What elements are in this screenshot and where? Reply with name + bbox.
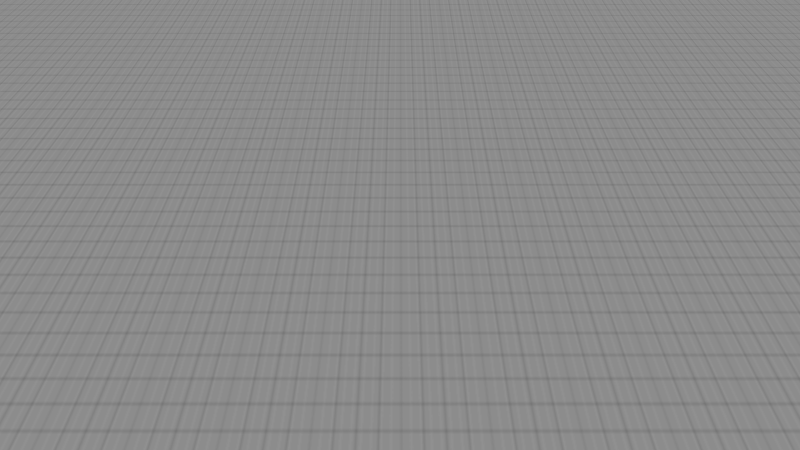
fascia-band (171, 346, 637, 386)
blue-chair (346, 141, 351, 146)
wall (426, 179, 486, 189)
wall-cap (387, 179, 388, 249)
wall (320, 156, 384, 166)
orange-door (218, 312, 231, 323)
wall-cap (407, 216, 409, 249)
maroon-door (467, 250, 479, 260)
wall-cap (247, 286, 375, 287)
wall (228, 156, 309, 166)
orange-door (386, 272, 399, 283)
desk-row (311, 211, 345, 217)
wall (249, 180, 291, 190)
orange-door (191, 297, 204, 308)
wall (497, 248, 602, 260)
wall (475, 155, 566, 165)
wall (193, 269, 222, 281)
blue-chair (330, 130, 335, 135)
wall (199, 250, 247, 262)
blue-chair (341, 130, 346, 135)
orange-door (500, 141, 510, 150)
orange-door (272, 157, 282, 166)
desk-row (313, 195, 346, 201)
blue-chair (334, 141, 339, 146)
wall-cap (172, 335, 634, 337)
maroon-door (354, 288, 368, 298)
brown-door (570, 281, 580, 291)
wall (264, 249, 361, 261)
maroon-door (407, 288, 421, 298)
wall (316, 217, 346, 228)
lab-table (326, 147, 353, 153)
orange-door (515, 311, 528, 322)
maroon-door (260, 288, 274, 298)
orange-door (536, 271, 549, 282)
blue-chair (336, 130, 341, 135)
red-door (529, 158, 536, 165)
wall-cap (393, 285, 530, 286)
orange-door (564, 308, 577, 319)
red-fixture (241, 135, 249, 140)
3d-viewport[interactable] (0, 0, 800, 450)
blue-chair (340, 141, 345, 146)
wall (504, 179, 575, 189)
floorplan-3d-model (0, 0, 800, 450)
wall (390, 155, 464, 165)
bench-row (305, 280, 343, 286)
blue-chair (329, 141, 334, 146)
blue-chair (347, 130, 352, 135)
green-item (430, 312, 439, 319)
wall (433, 216, 528, 227)
bench-row (438, 279, 474, 285)
wall (310, 179, 409, 189)
desk-row (429, 195, 460, 201)
orange-door (296, 246, 308, 256)
maroon-door (330, 288, 344, 298)
red-fixture (254, 135, 262, 139)
wall (376, 249, 481, 261)
brown-door (236, 280, 246, 290)
